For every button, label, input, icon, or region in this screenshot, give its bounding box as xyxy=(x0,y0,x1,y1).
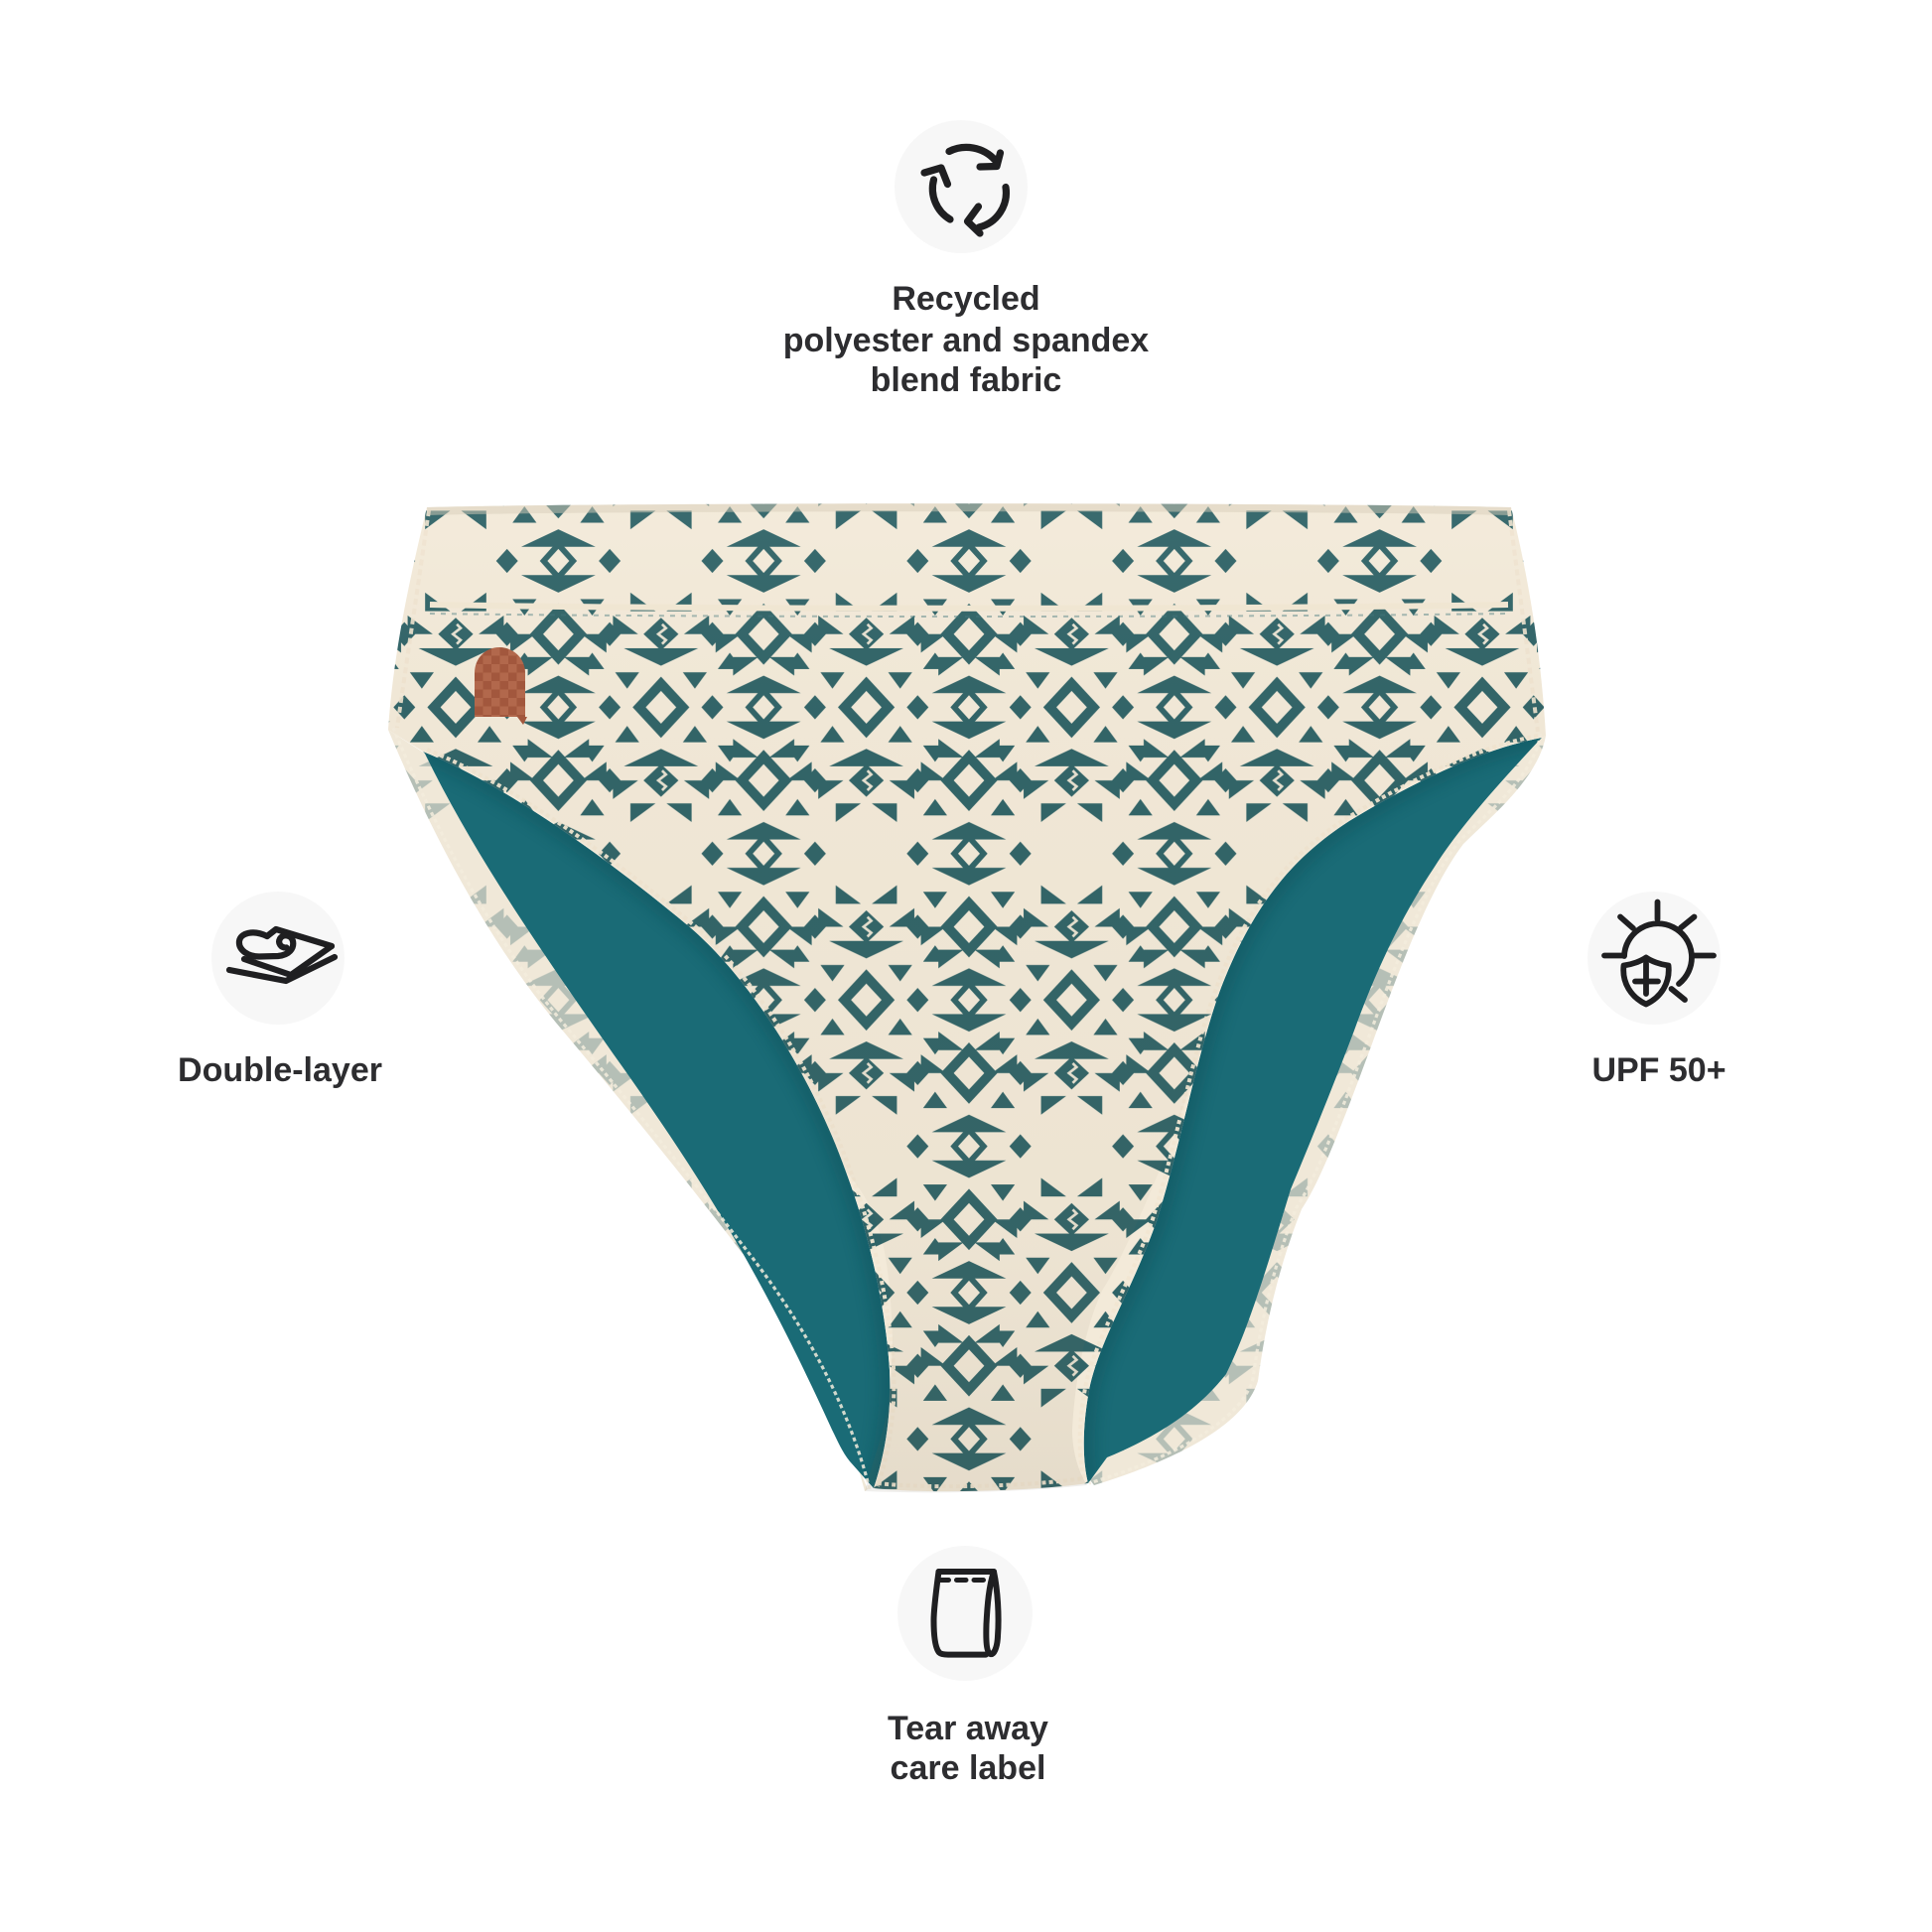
svg-text:Tear away: Tear away xyxy=(888,1710,1048,1747)
svg-text:blend fabric: blend fabric xyxy=(871,361,1062,399)
svg-text:polyester and spandex: polyester and spandex xyxy=(783,322,1150,359)
svg-text:Double-layer: Double-layer xyxy=(178,1051,382,1089)
svg-text:care label: care label xyxy=(891,1749,1046,1787)
svg-text:Recycled: Recycled xyxy=(892,280,1039,318)
svg-text:UPF 50+: UPF 50+ xyxy=(1591,1051,1725,1089)
